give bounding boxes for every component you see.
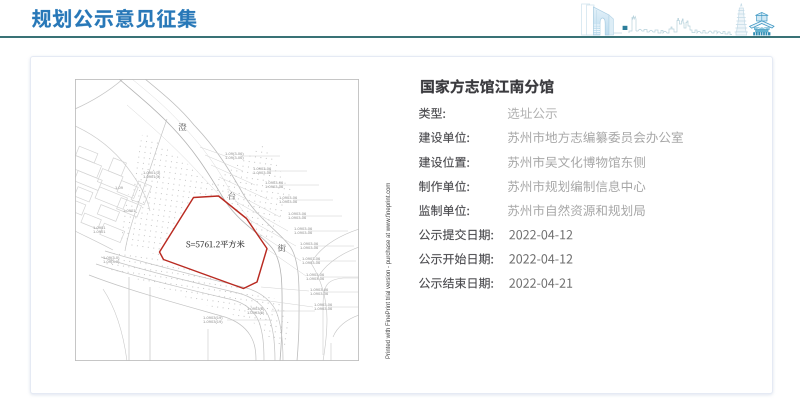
svg-text:1-0901: 1-0901: [123, 208, 136, 213]
svg-text:1-09(3-0): 1-09(3-0): [103, 259, 120, 264]
svg-text:1-0901: 1-0901: [93, 229, 106, 234]
svg-text:1-0903-06: 1-0903-06: [265, 184, 284, 189]
svg-text:1-0903-06: 1-0903-06: [300, 245, 319, 250]
svg-text:1-0903-06: 1-0903-06: [306, 276, 325, 281]
svg-text:1-09: 1-09: [115, 185, 124, 190]
svg-text:1-0903-06: 1-0903-06: [294, 230, 313, 235]
svg-text:1-0903-06: 1-0903-06: [314, 306, 333, 311]
svg-text:1-0903-06: 1-0903-06: [279, 199, 298, 204]
svg-text:1-09(3-06): 1-09(3-06): [225, 155, 244, 160]
svg-text:1-0903(6): 1-0903(6): [247, 310, 265, 315]
svg-text:1-0903-06: 1-0903-06: [288, 215, 307, 220]
svg-text:1-0903(19): 1-0903(19): [203, 319, 223, 324]
svg-text:1-0903-06: 1-0903-06: [253, 170, 272, 175]
svg-text:1-0901(3): 1-0901(3): [143, 174, 161, 179]
svg-text:1-0903-06: 1-0903-06: [310, 291, 329, 296]
